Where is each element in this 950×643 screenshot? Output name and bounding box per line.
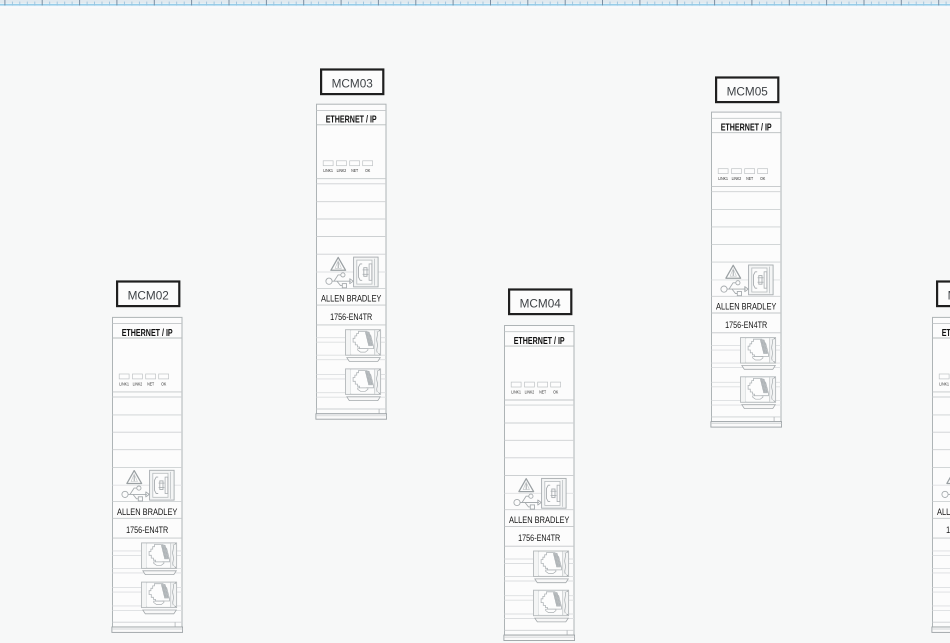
svg-text:1756-EN4TR: 1756-EN4TR	[946, 525, 950, 535]
svg-text:1756-EN4TR: 1756-EN4TR	[518, 533, 560, 543]
svg-text:MCM04: MCM04	[520, 296, 562, 310]
svg-text:LINK2: LINK2	[133, 382, 143, 387]
svg-text:MCM05: MCM05	[726, 85, 768, 98]
svg-text:1756-EN4TR: 1756-EN4TR	[330, 311, 372, 321]
svg-text:ALLEN BRADLEY: ALLEN BRADLEY	[117, 507, 177, 517]
svg-text:OK: OK	[161, 382, 166, 387]
svg-text:ETHERNET / IP: ETHERNET / IP	[942, 328, 950, 339]
svg-text:ETHERNET / IP: ETHERNET / IP	[325, 114, 376, 125]
svg-text:ETHERNET / IP: ETHERNET / IP	[122, 328, 173, 339]
svg-text:ALLEN BRADLEY: ALLEN BRADLEY	[937, 507, 950, 517]
svg-text:MCM03: MCM03	[331, 77, 373, 90]
svg-text:ALLEN BRADLEY: ALLEN BRADLEY	[321, 293, 381, 303]
svg-text:NET: NET	[147, 382, 154, 387]
svg-text:LINK1: LINK1	[323, 168, 333, 173]
svg-text:LINK1: LINK1	[512, 390, 522, 395]
svg-text:NET: NET	[539, 390, 546, 395]
svg-text:OK: OK	[553, 390, 558, 395]
svg-text:LINK1: LINK1	[120, 382, 130, 387]
svg-text:1756-EN4TR: 1756-EN4TR	[725, 320, 767, 330]
svg-text:LINK2: LINK2	[525, 390, 535, 395]
svg-text:ETHERNET / IP: ETHERNET / IP	[514, 336, 565, 347]
svg-text:LINK1: LINK1	[939, 382, 949, 387]
svg-text:NET: NET	[746, 176, 753, 181]
svg-text:LINK1: LINK1	[718, 176, 728, 181]
svg-text:OK: OK	[760, 176, 765, 181]
svg-text:OK: OK	[365, 168, 370, 173]
svg-text:LINK2: LINK2	[336, 168, 346, 173]
svg-text:1756-EN4TR: 1756-EN4TR	[126, 525, 168, 535]
svg-text:LINK2: LINK2	[731, 176, 741, 181]
svg-text:MCM02: MCM02	[128, 289, 169, 302]
svg-text:NET: NET	[351, 168, 358, 173]
svg-text:ALLEN BRADLEY: ALLEN BRADLEY	[716, 302, 776, 312]
svg-text:ALLEN BRADLEY: ALLEN BRADLEY	[509, 515, 569, 525]
svg-text:ETHERNET / IP: ETHERNET / IP	[720, 123, 771, 134]
